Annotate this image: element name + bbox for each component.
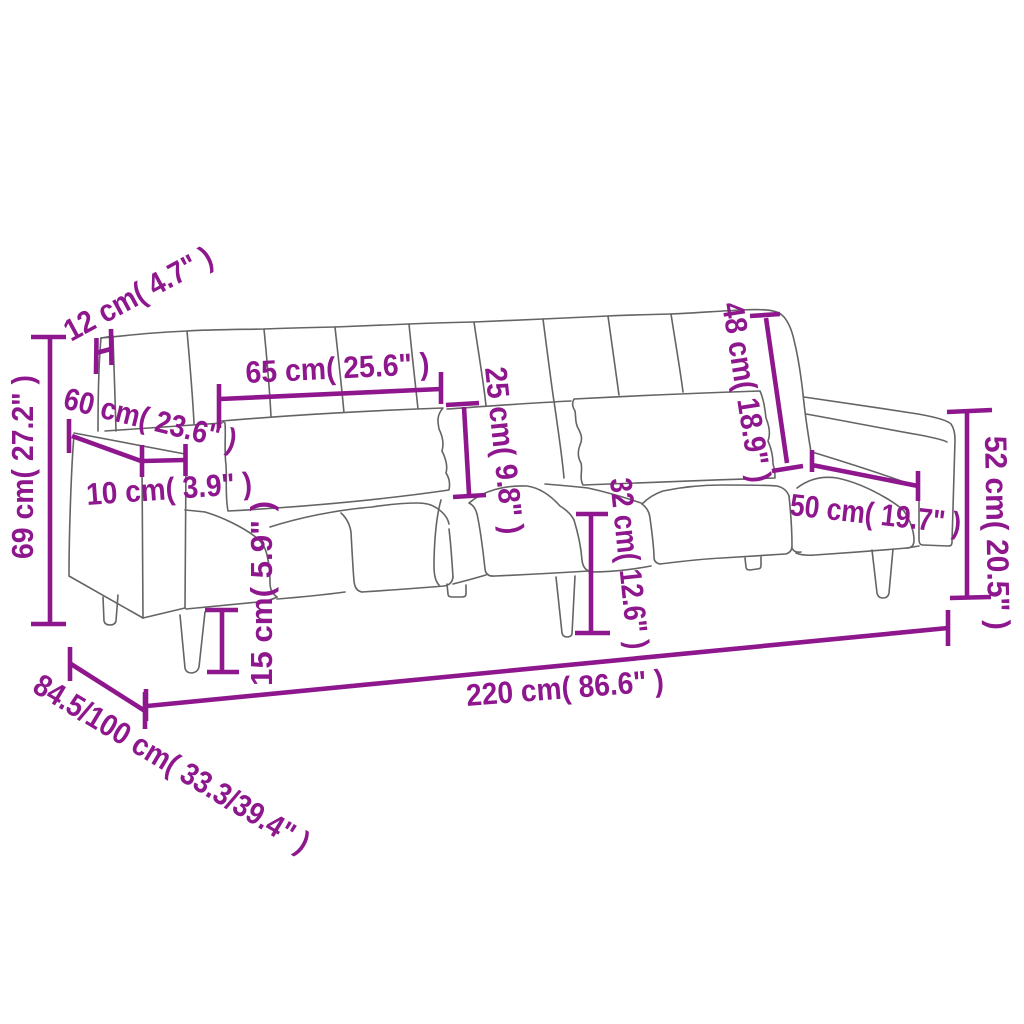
svg-text:52 cm( 20.5" ): 52 cm( 20.5" ) xyxy=(978,436,1016,631)
svg-text:15 cm( 5.9" ): 15 cm( 5.9" ) xyxy=(244,501,279,686)
svg-text:69 cm( 27.2" ): 69 cm( 27.2" ) xyxy=(5,375,40,559)
